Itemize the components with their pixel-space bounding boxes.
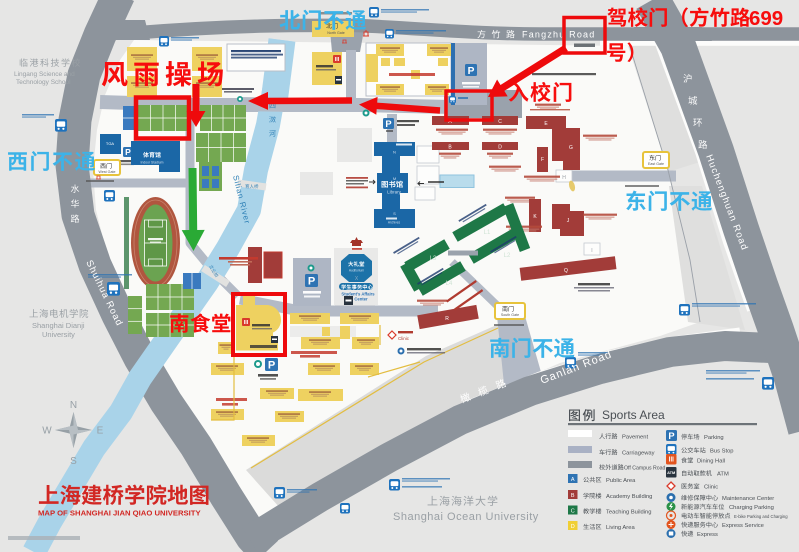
svg-text:H: H <box>562 175 566 181</box>
svg-text:Auditorium: Auditorium <box>349 269 365 273</box>
svg-text:D: D <box>571 524 575 530</box>
svg-text:South Gate: South Gate <box>501 313 519 317</box>
svg-text:Fangzhu Road: Fangzhu Road <box>522 30 595 40</box>
svg-text:P: P <box>268 360 275 372</box>
svg-text:M: M <box>393 176 396 181</box>
svg-text:P: P <box>385 119 391 129</box>
svg-text:R: R <box>445 316 449 322</box>
svg-text:C: C <box>498 119 502 125</box>
svg-text:Teaching Building: Teaching Building <box>606 510 651 516</box>
svg-text:S: S <box>70 456 77 467</box>
svg-text:E-bike Parking and Charging: E-bike Parking and Charging <box>734 514 788 519</box>
svg-text:TGA: TGA <box>106 141 115 146</box>
svg-text:West Gate: West Gate <box>99 170 116 174</box>
svg-text:Express Service: Express Service <box>722 523 764 529</box>
svg-text:Pavement: Pavement <box>622 435 648 441</box>
svg-text:Living Area: Living Area <box>606 525 635 531</box>
svg-text:Q: Q <box>564 268 568 274</box>
svg-text:F: F <box>541 157 544 163</box>
svg-text:P: P <box>125 147 131 157</box>
svg-text:Clinic: Clinic <box>704 485 718 491</box>
svg-text:Public Area: Public Area <box>606 478 636 484</box>
svg-text:East Gate: East Gate <box>648 162 664 166</box>
svg-text:P: P <box>468 66 475 77</box>
svg-text:P: P <box>668 431 674 441</box>
svg-text:Academy Building: Academy Building <box>606 494 652 500</box>
svg-text:L1: L1 <box>484 230 491 236</box>
svg-text:I: I <box>591 248 592 254</box>
svg-text:S: S <box>393 211 396 216</box>
svg-text:W: W <box>42 426 52 437</box>
svg-text:Shanghai Dianji: Shanghai Dianji <box>32 321 85 330</box>
svg-text:Maintenance Center: Maintenance Center <box>722 496 774 502</box>
svg-text:N: N <box>393 150 396 155</box>
svg-text:Sports Area: Sports Area <box>602 408 665 422</box>
svg-text:N: N <box>70 400 77 411</box>
svg-text:Center: Center <box>354 297 368 302</box>
svg-text:E: E <box>97 426 104 437</box>
svg-text:Carriageway: Carriageway <box>622 451 655 457</box>
svg-text:Lingang Science and: Lingang Science and <box>14 71 75 78</box>
svg-text:Dining Hall: Dining Hall <box>697 459 725 465</box>
svg-text:ATM: ATM <box>667 470 675 475</box>
svg-text:Archives: Archives <box>388 221 401 225</box>
svg-text:Technology School: Technology School <box>16 79 71 86</box>
svg-text:Indoor Stadium: Indoor Stadium <box>141 161 164 165</box>
svg-text:North Gate: North Gate <box>327 31 345 35</box>
svg-text:D: D <box>498 145 502 151</box>
svg-text:C: C <box>571 509 575 515</box>
svg-text:Parking: Parking <box>704 435 724 441</box>
svg-text:A: A <box>571 477 575 483</box>
svg-text:Off Campus Road: Off Campus Road <box>624 466 666 472</box>
svg-text:P: P <box>308 276 315 288</box>
svg-text:MAP OF SHANGHAI JIAN QIAO UNIV: MAP OF SHANGHAI JIAN QIAO UNIVERSITY <box>38 509 201 518</box>
svg-text:Shanghai Ocean University: Shanghai Ocean University <box>393 511 539 523</box>
svg-text:699: 699 <box>749 7 783 30</box>
svg-text:ATM: ATM <box>717 472 729 478</box>
svg-text:Library: Library <box>387 190 402 195</box>
svg-text:G: G <box>569 145 573 151</box>
svg-text:Clinic: Clinic <box>398 336 410 341</box>
svg-text:L2: L2 <box>504 253 511 259</box>
svg-text:University: University <box>42 330 75 339</box>
svg-text:Express: Express <box>697 532 718 538</box>
svg-text:B: B <box>571 493 575 499</box>
svg-text:Charging Parking: Charging Parking <box>729 505 774 511</box>
svg-text:L4: L4 <box>446 281 453 287</box>
svg-text:L3: L3 <box>430 256 437 262</box>
svg-text:Bus Stop: Bus Stop <box>710 449 734 455</box>
